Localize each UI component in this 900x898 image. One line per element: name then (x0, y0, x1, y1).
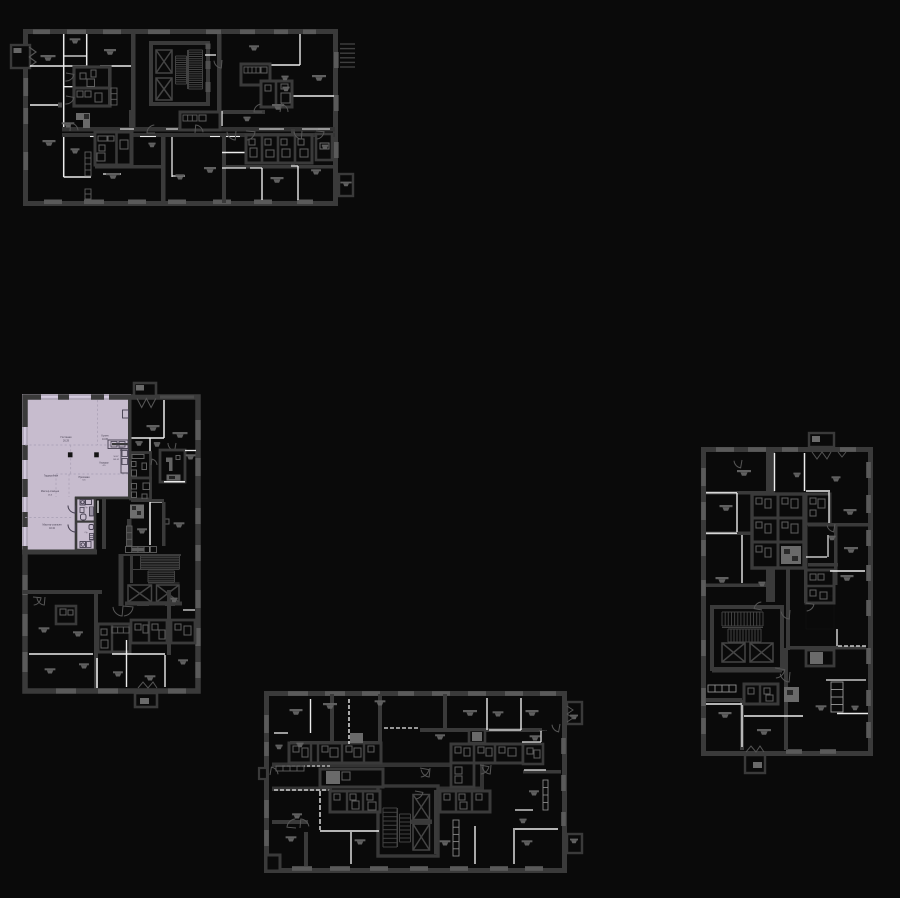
svg-text:С/у: С/у (85, 507, 88, 509)
svg-text:26.29: 26.29 (63, 440, 70, 443)
svg-text:148.42: 148.42 (113, 459, 120, 461)
svg-text:50.67: 50.67 (113, 456, 119, 458)
svg-text:Коридор: Коридор (99, 462, 109, 464)
svg-text:18.32: 18.32 (49, 528, 55, 530)
svg-text:Кухня: Кухня (102, 433, 110, 437)
svg-text:Гардеробная: Гардеробная (44, 475, 59, 477)
svg-text:С/у: С/у (85, 532, 88, 534)
svg-text:Гостиная: Гостиная (61, 435, 72, 439)
svg-text:спальня: спальня (539, 730, 547, 732)
svg-text:Мастер-спальня: Мастер-спальня (41, 490, 60, 493)
svg-text:Мастер-спальня: Мастер-спальня (43, 523, 63, 526)
svg-text:Прихожая: Прихожая (78, 476, 90, 479)
